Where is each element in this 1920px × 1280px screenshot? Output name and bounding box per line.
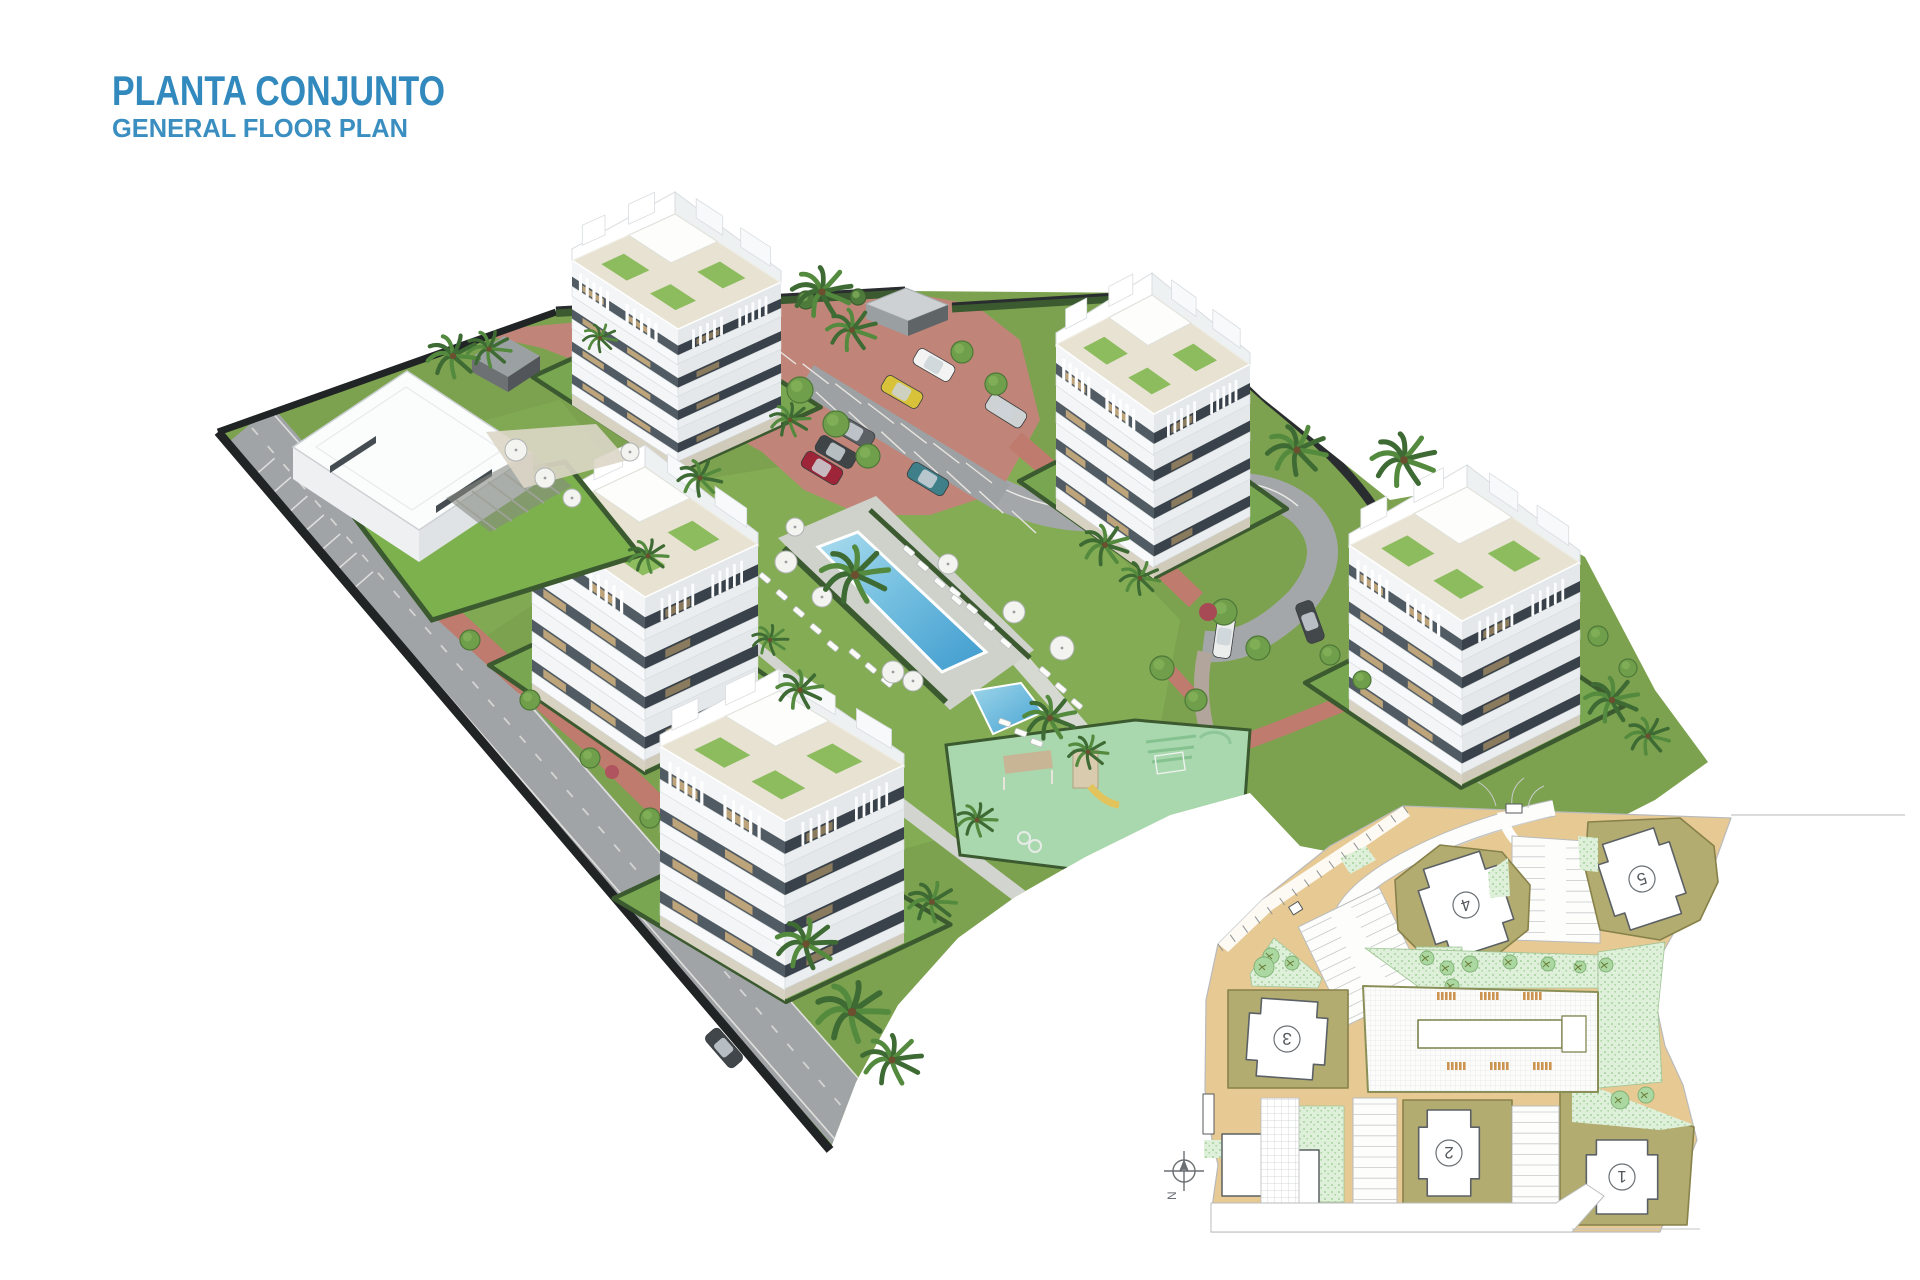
- svg-text:3: 3: [1282, 1029, 1293, 1049]
- svg-text:2: 2: [1444, 1143, 1453, 1162]
- svg-text:1: 1: [1617, 1167, 1626, 1186]
- svg-text:N: N: [1165, 1191, 1179, 1200]
- svg-text:PLANTA CONJUNTO: PLANTA CONJUNTO: [112, 67, 445, 114]
- svg-text:GENERAL FLOOR PLAN: GENERAL FLOOR PLAN: [112, 113, 408, 143]
